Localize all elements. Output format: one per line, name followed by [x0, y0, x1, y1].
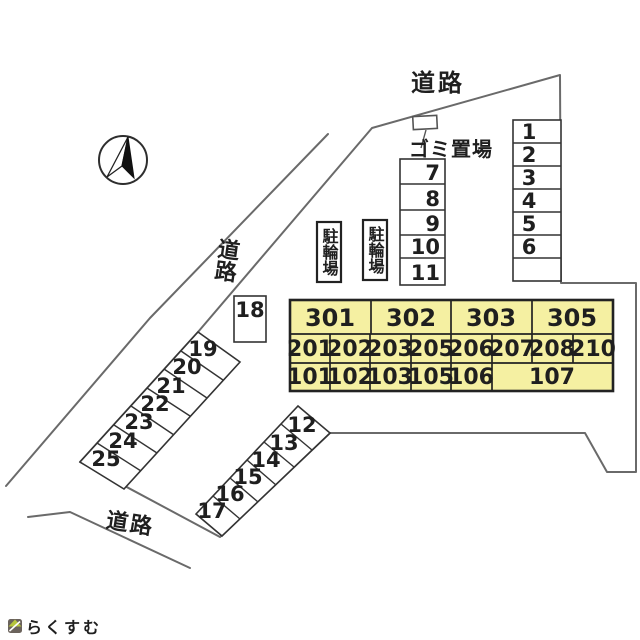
parking-space-5: 5	[522, 212, 537, 236]
parking-space-9: 9	[425, 212, 440, 236]
room-206: 206	[448, 337, 494, 362]
parking-space-18: 18	[235, 298, 264, 322]
parking-space-10: 10	[411, 235, 440, 259]
parking-space-11: 11	[411, 261, 440, 285]
bicycle-parking-right-label: 駐輪場	[366, 225, 385, 275]
parking-space-2: 2	[522, 143, 537, 167]
bicycle-parking-left: 駐輪場	[317, 222, 341, 282]
room-106: 106	[448, 365, 494, 390]
watermark-text: らくすむ	[26, 618, 102, 637]
parking-space-17: 17	[197, 499, 226, 523]
room-103: 103	[367, 365, 413, 390]
parking-space-8: 8	[425, 187, 440, 211]
parking-space-7: 7	[425, 161, 440, 185]
bicycle-parking-left-label: 駐輪場	[320, 227, 339, 277]
room-302: 302	[386, 304, 436, 332]
room-203: 203	[367, 337, 413, 362]
parking-space-3: 3	[522, 166, 537, 190]
parking-column-right: 1 2 3 4 5 6	[513, 120, 561, 281]
room-305: 305	[547, 304, 597, 332]
room-303: 303	[466, 304, 516, 332]
watermark-logo-icon	[8, 619, 22, 633]
building-table: 301 302 303 305 201 202 203 205 206 207 …	[287, 300, 616, 391]
road-label-top: 道路	[411, 69, 465, 97]
garbage-bin-marker	[413, 115, 438, 129]
parking-box-18: 18	[234, 296, 266, 342]
room-210: 210	[570, 337, 616, 362]
parking-space-4: 4	[522, 189, 537, 213]
parking-site-plan-page: 道路 道路 道路 ゴミ置場 駐輪場 駐輪場 1 2 3 4 5 6	[0, 0, 640, 640]
garbage-area-label: ゴミ置場	[409, 137, 493, 161]
room-301: 301	[305, 304, 355, 332]
parking-space-1: 1	[522, 120, 537, 144]
room-208: 208	[529, 337, 575, 362]
parking-column-middle: 7 8 9 10 11	[400, 159, 445, 285]
site-plan-drawing: 道路 道路 道路 ゴミ置場 駐輪場 駐輪場 1 2 3 4 5 6	[0, 0, 640, 640]
parking-space-6: 6	[522, 235, 537, 259]
room-107: 107	[529, 365, 575, 390]
parking-space-25: 25	[91, 447, 120, 471]
bicycle-parking-right: 駐輪場	[363, 220, 387, 280]
